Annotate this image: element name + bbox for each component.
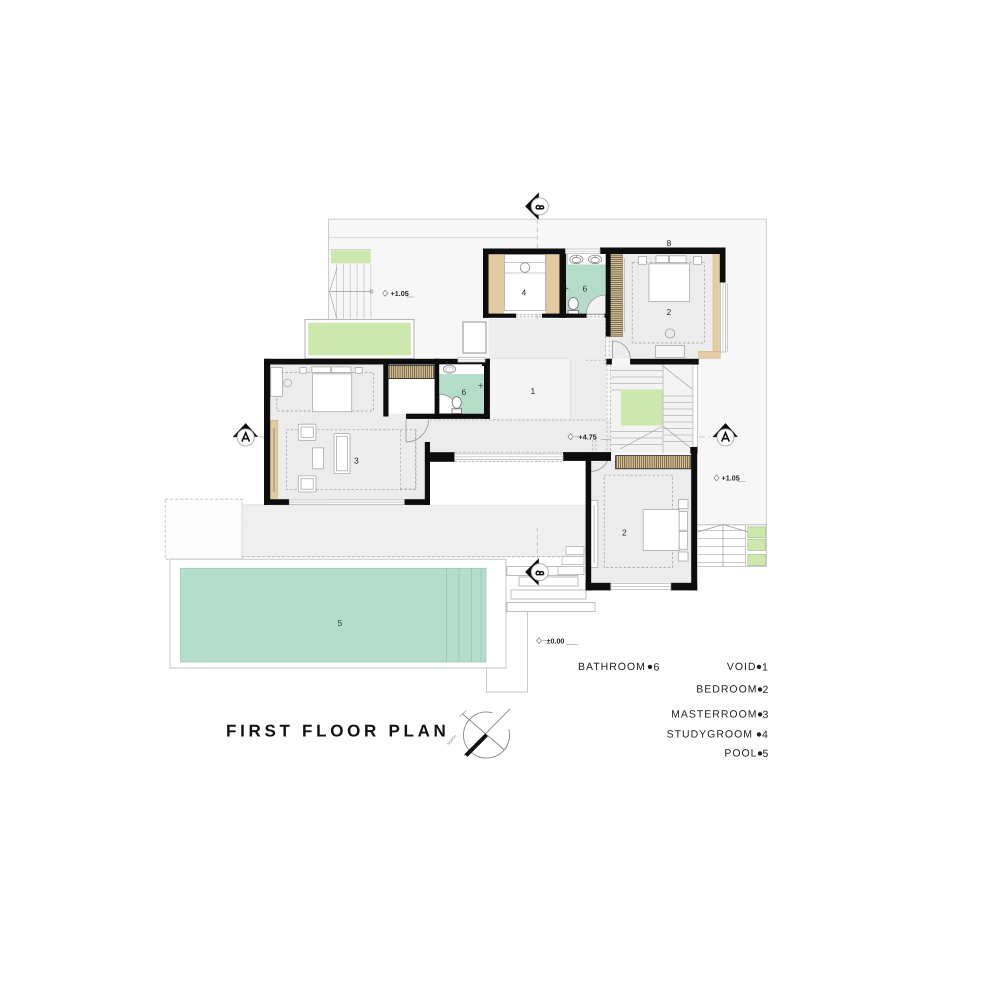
svg-text:+4.75: +4.75 [579,432,597,441]
svg-text:4: 4 [522,288,527,298]
svg-text:2: 2 [667,307,672,317]
svg-text:FIRST FLOOR PLAN: FIRST FLOOR PLAN [226,722,450,741]
svg-text:6: 6 [583,284,588,294]
svg-text:3: 3 [354,456,359,466]
svg-text:1: 1 [762,661,768,673]
svg-text:STUDYGROOM: STUDYGROOM [667,728,753,740]
svg-text:±0.00: ±0.00 [547,636,565,645]
svg-text:2: 2 [622,528,627,538]
svg-text:2: 2 [763,684,769,696]
svg-text:5: 5 [338,618,343,628]
svg-text:8: 8 [667,238,672,248]
svg-text:+1.05: +1.05 [722,473,740,482]
svg-text:BATHROOM: BATHROOM [578,661,646,673]
svg-text:4: 4 [762,729,768,741]
svg-text:1: 1 [531,386,536,396]
svg-text:MASTERROOM: MASTERROOM [671,708,757,720]
svg-text:6: 6 [462,387,467,397]
svg-text:VOID: VOID [727,661,757,673]
svg-text:+1.05: +1.05 [391,289,409,298]
svg-text:POOL: POOL [724,747,757,759]
svg-text:BEDROOM: BEDROOM [696,683,757,695]
svg-text:5: 5 [763,748,769,760]
svg-text:6: 6 [654,661,660,673]
svg-text:3: 3 [763,709,769,721]
